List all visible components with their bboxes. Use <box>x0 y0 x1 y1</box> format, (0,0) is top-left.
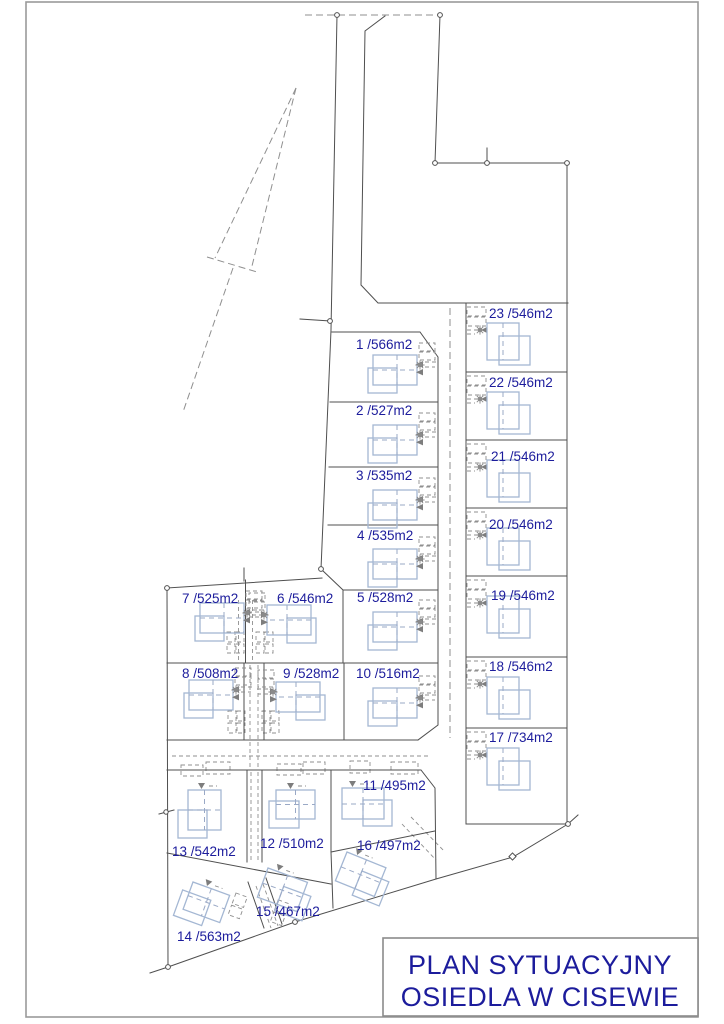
plot-label-18: 18 /546m2 <box>489 659 553 674</box>
road-west-edge <box>321 15 343 663</box>
title-block: PLAN SYTUACYJNY OSIEDLA W CISEWIE <box>383 938 698 1016</box>
plot-label-16: 16 /497m2 <box>357 838 421 853</box>
plot-label-9: 9 /528m2 <box>283 666 339 681</box>
plot-label-13: 13 /542m2 <box>172 844 236 859</box>
tick-west <box>300 319 330 321</box>
plot-label-6: 6 /546m2 <box>277 591 333 606</box>
house-plot-5 <box>368 600 437 650</box>
title-line-1: PLAN SYTUACYJNY <box>408 950 672 980</box>
bins-8-9 <box>228 711 279 733</box>
house-plot-3 <box>368 478 437 528</box>
plot-label-1: 1 /566m2 <box>356 337 412 352</box>
house-plot-14 <box>173 873 232 931</box>
survey-wedge-line-2 <box>252 88 296 266</box>
plot-label-22: 22 /546m2 <box>489 375 553 390</box>
site-plan-drawing: 1 /566m2 2 /527m2 3 /535m2 4 /535m2 5 /5… <box>0 0 724 1024</box>
plot-label-2: 2 /527m2 <box>356 403 412 418</box>
plot-label-11: 11 /495m2 <box>363 778 426 793</box>
house-plot-10 <box>368 676 437 726</box>
west-boundary <box>167 588 168 967</box>
bins-7-6 <box>227 632 273 653</box>
plot-label-3: 3 /535m2 <box>356 468 412 483</box>
plot-label-7: 7 /525m2 <box>182 591 238 606</box>
plot-label-8: 8 /508m2 <box>182 666 238 681</box>
driveway-dashes-13-12 <box>251 772 258 860</box>
driveway-dashes-8-9 <box>250 665 258 768</box>
house-plot-16 <box>333 846 396 906</box>
right-column-dividers <box>466 372 567 728</box>
boundary-lines <box>150 15 578 973</box>
driveway-edges-8-9 <box>244 663 264 740</box>
plot-label-5: 5 /528m2 <box>357 590 413 605</box>
house-plot-12 <box>269 783 315 828</box>
house-plot-13 <box>178 783 221 838</box>
house-plot-2 <box>368 413 437 463</box>
plot-label-19: 19 /546m2 <box>491 588 555 603</box>
plot-label-20: 20 /546m2 <box>489 517 553 532</box>
title-line-2: OSIEDLA W CISEWIE <box>401 982 680 1012</box>
plot-label-4: 4 /535m2 <box>357 528 413 543</box>
divider-12-11-15-16 <box>331 770 333 908</box>
plot-label-21: 21 /546m2 <box>491 449 555 464</box>
survey-wedge-tail <box>183 268 233 412</box>
neighbor-parcel-edge <box>361 16 568 303</box>
plot-label-23: 23 /546m2 <box>489 306 553 321</box>
north-parcel-l-line <box>435 15 567 163</box>
plot-label-15: 15 /467m2 <box>256 904 320 919</box>
gates-south-road <box>181 761 418 776</box>
house-plot-4 <box>368 537 437 587</box>
plot-label-10: 10 /516m2 <box>356 666 420 681</box>
page-border <box>26 2 698 1017</box>
site-plan-page: 1 /566m2 2 /527m2 3 /535m2 4 /535m2 5 /5… <box>0 0 724 1024</box>
plot-label-17: 17 /734m2 <box>489 730 553 745</box>
houses <box>173 307 530 931</box>
survey-wedge-line-1 <box>215 88 296 258</box>
plot-label-14: 14 /563m2 <box>177 929 241 944</box>
plot-label-12: 12 /510m2 <box>260 836 324 851</box>
